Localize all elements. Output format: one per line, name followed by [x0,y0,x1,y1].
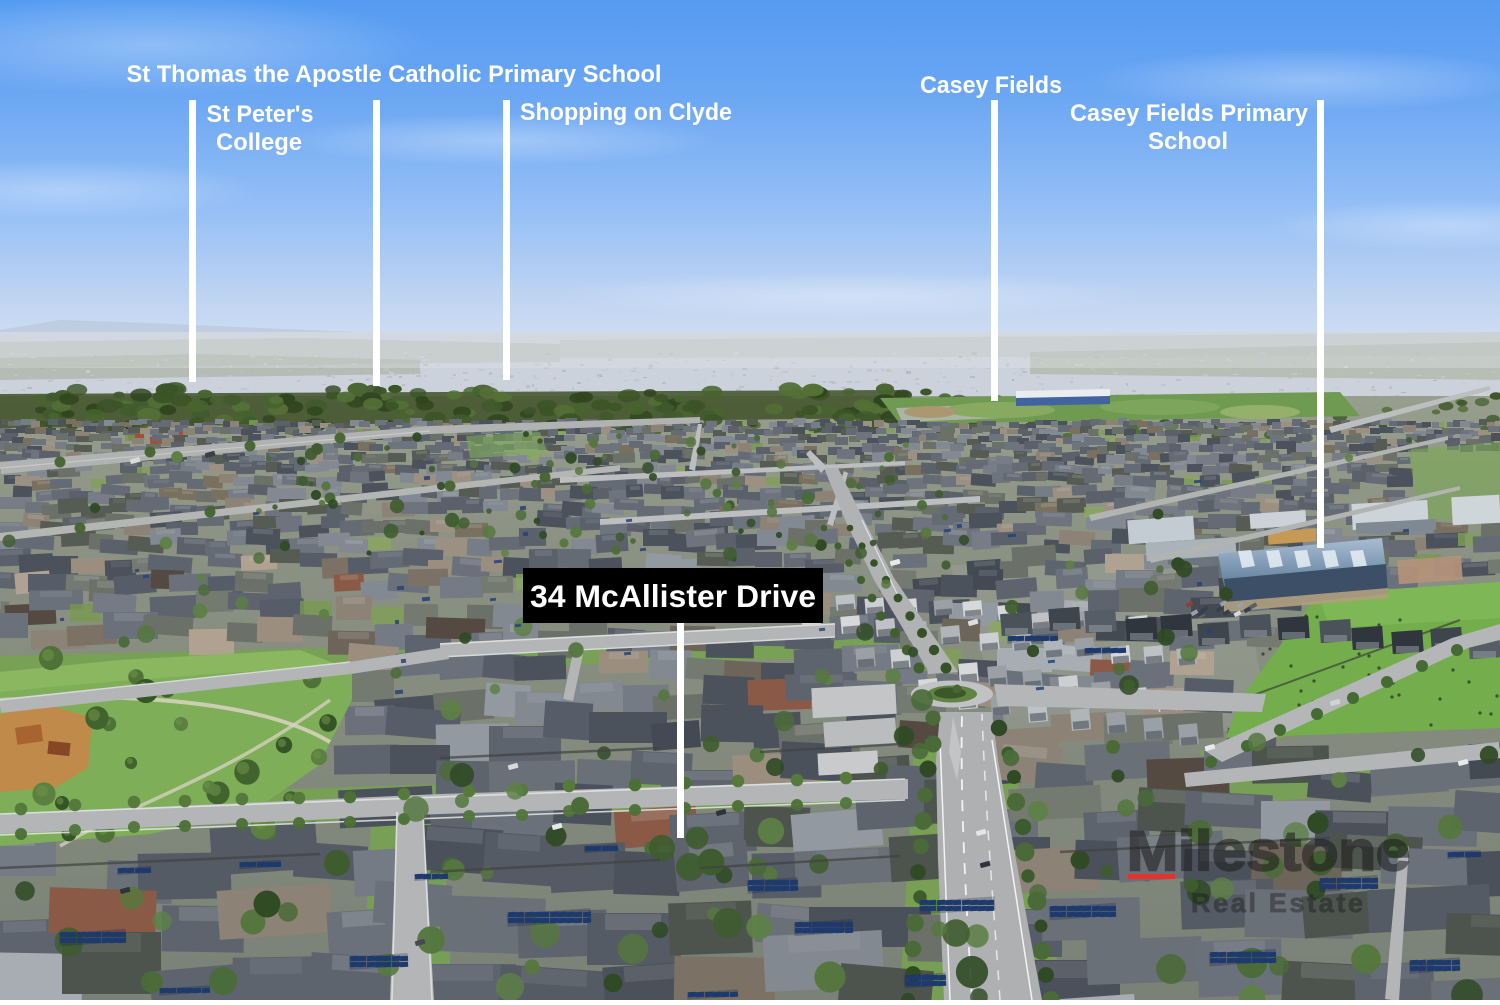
svg-text:34 McAllister Drive: 34 McAllister Drive [530,578,816,614]
svg-text:St Thomas the Apostle Catholic: St Thomas the Apostle Catholic Primary S… [127,61,662,88]
svg-text:Casey Fields: Casey Fields [920,72,1062,99]
svg-text:Casey Fields Primary: Casey Fields Primary [1070,100,1308,127]
svg-text:College: College [216,129,302,156]
svg-text:Milestone: Milestone [1127,819,1410,882]
svg-text:Shopping on Clyde: Shopping on Clyde [520,99,732,126]
svg-text:St Peter's: St Peter's [207,101,314,128]
svg-text:School: School [1148,128,1228,155]
svg-text:Real Estate: Real Estate [1191,888,1363,918]
